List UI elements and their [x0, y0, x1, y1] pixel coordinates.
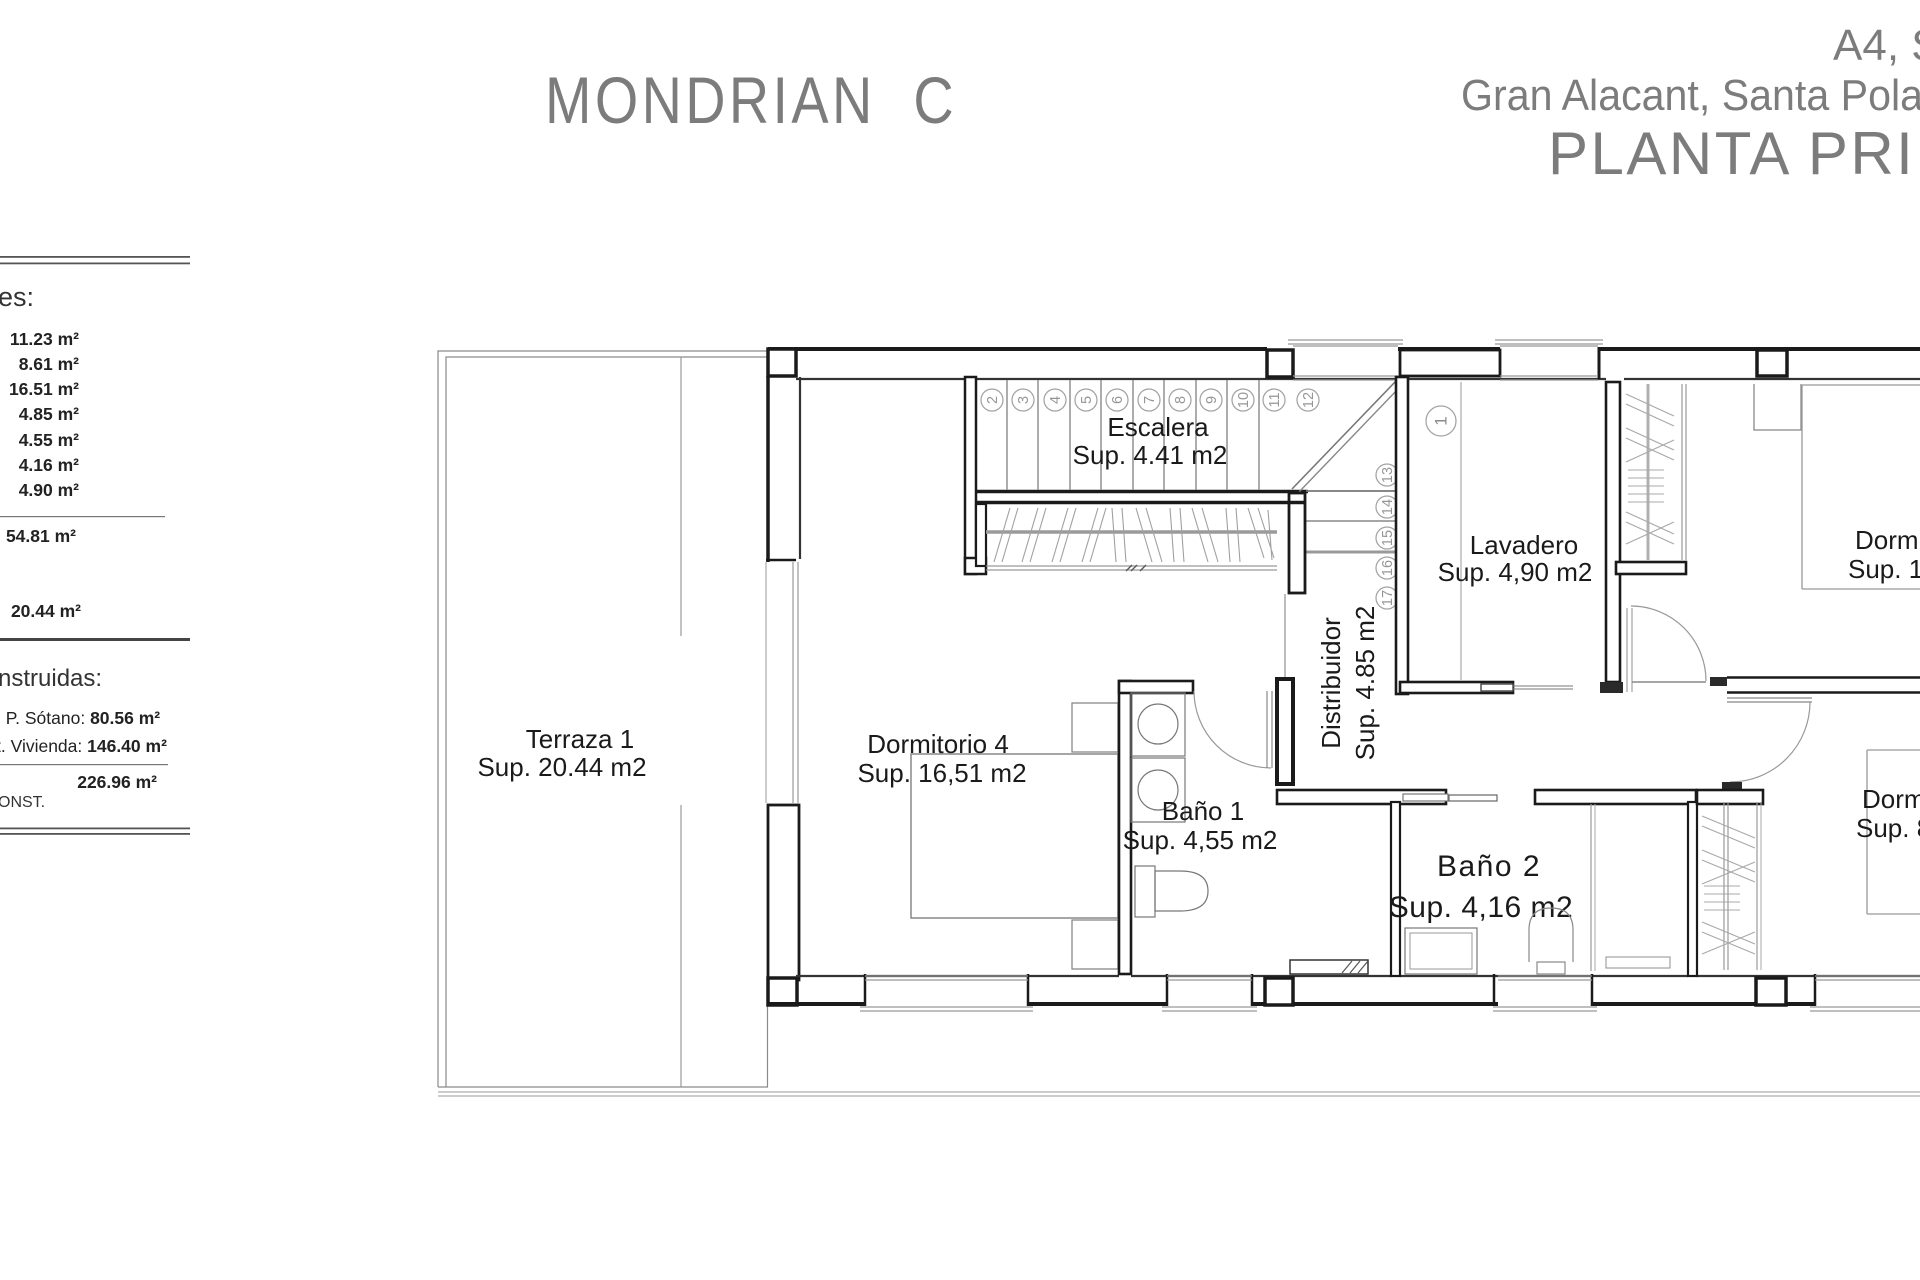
svg-text:Dormitorio 2: Dormitorio 2	[1862, 784, 1920, 814]
svg-text:17: 17	[1380, 590, 1396, 606]
svg-text:Sup. 11,23 m2: Sup. 11,23 m2	[1848, 554, 1920, 584]
svg-text:20.44 m²: 20.44 m²	[11, 601, 81, 621]
svg-text:Gran Alacant, Santa Pola: Gran Alacant, Santa Pola	[1461, 71, 1920, 120]
svg-text:Distribuidor: Distribuidor	[1316, 617, 1346, 749]
svg-text:4.55 m²: 4.55 m²	[19, 430, 79, 450]
svg-text:Sup. 8,61 m2: Sup. 8,61 m2	[1856, 813, 1920, 843]
svg-text:Sup. 4.85 m2: Sup. 4.85 m2	[1350, 606, 1380, 761]
svg-text:2: 2	[985, 396, 1001, 404]
svg-text:7: 7	[1142, 396, 1158, 404]
svg-text:Dormitorio 1: Dormitorio 1	[1855, 525, 1920, 555]
svg-text:Terraza 1: Terraza 1	[526, 724, 634, 754]
svg-text:14: 14	[1380, 499, 1396, 515]
svg-text:Sup. 20.44 m2: Sup. 20.44 m2	[477, 752, 646, 782]
svg-text:Sup. 4.41 m2: Sup. 4.41 m2	[1073, 440, 1228, 470]
svg-text:Escalera: Escalera	[1107, 412, 1209, 442]
svg-text:5: 5	[1079, 396, 1095, 404]
svg-text:MONDRIAN C: MONDRIAN C	[545, 63, 957, 137]
svg-text:PLANTA PRIMERA: PLANTA PRIMERA	[1548, 120, 1920, 187]
svg-text:10: 10	[1236, 392, 1252, 408]
svg-text:11: 11	[1267, 392, 1283, 407]
svg-text:6: 6	[1110, 396, 1126, 404]
svg-text:1: 1	[1432, 416, 1451, 425]
svg-text:8.61 m²: 8.61 m²	[19, 354, 79, 374]
svg-text:16: 16	[1380, 560, 1396, 576]
svg-text:A4, S: A4, S	[1833, 21, 1920, 70]
svg-text:4.16 m²: 4.16 m²	[19, 455, 79, 475]
svg-text:13: 13	[1380, 467, 1396, 483]
svg-text:Sup. 4,90 m2: Sup. 4,90 m2	[1438, 557, 1593, 587]
svg-text:Sup. 4,55 m2: Sup. 4,55 m2	[1123, 825, 1278, 855]
svg-text:t. Vivienda: 146.40 m²: t. Vivienda: 146.40 m²	[0, 736, 167, 756]
svg-text:16.51 m²: 16.51 m²	[9, 379, 79, 399]
svg-text:es:: es:	[0, 282, 34, 312]
svg-text:54.81 m²: 54.81 m²	[6, 526, 76, 546]
svg-text:ONST.: ONST.	[0, 794, 45, 811]
svg-text:Lavadero: Lavadero	[1470, 530, 1578, 560]
svg-text:226.96 m²: 226.96 m²	[77, 772, 157, 792]
svg-text:8: 8	[1173, 396, 1189, 404]
svg-text:Sup. 16,51 m2: Sup. 16,51 m2	[857, 758, 1026, 788]
svg-text:4: 4	[1048, 396, 1064, 404]
svg-text:15: 15	[1380, 530, 1396, 546]
svg-text:4.85 m²: 4.85 m²	[19, 404, 79, 424]
svg-text:4.90 m²: 4.90 m²	[19, 480, 79, 500]
svg-text:11.23 m²: 11.23 m²	[10, 329, 79, 349]
svg-text:. P. Sótano: 80.56 m²: . P. Sótano: 80.56 m²	[0, 708, 160, 728]
svg-text:3: 3	[1016, 396, 1032, 404]
svg-text:nstruidas:: nstruidas:	[0, 665, 102, 692]
svg-text:12: 12	[1301, 392, 1317, 408]
svg-text:Baño 2: Baño 2	[1437, 850, 1541, 883]
svg-text:Sup. 4,16 m2: Sup. 4,16 m2	[1389, 891, 1573, 924]
svg-text:Baño 1: Baño 1	[1162, 796, 1244, 826]
svg-text:9: 9	[1204, 396, 1220, 404]
